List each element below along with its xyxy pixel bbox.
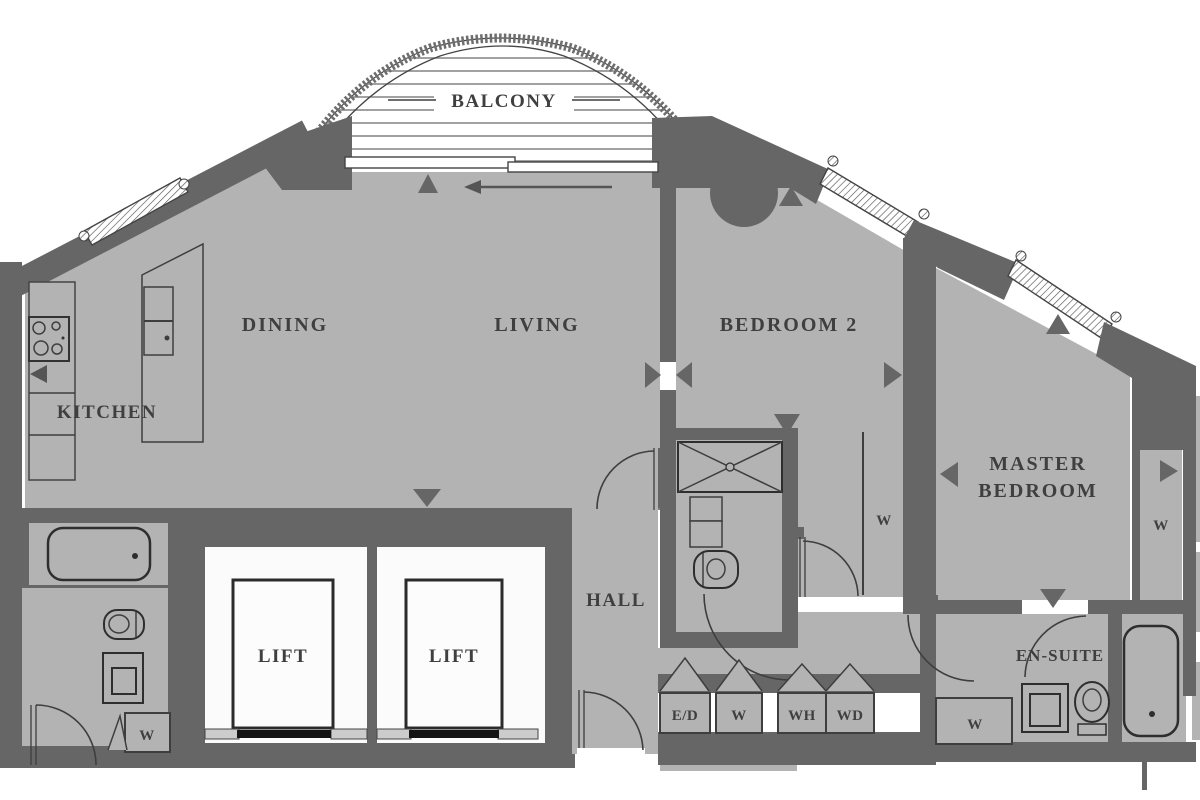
closet-label-w-bedroom2: W bbox=[876, 513, 892, 529]
closet-row-bottom-wall bbox=[658, 732, 936, 765]
room-label-lift1: LIFT bbox=[258, 646, 308, 667]
living-bedroom2-wall-upper bbox=[660, 172, 676, 362]
right-exterior-wall bbox=[1183, 366, 1196, 696]
lift2-door-sill bbox=[409, 730, 499, 738]
toilet2-icon bbox=[694, 551, 738, 588]
room-label-lift2: LIFT bbox=[429, 646, 479, 667]
closet-label-w-master: W bbox=[1153, 518, 1169, 534]
living-bedroom2-wall-lower bbox=[660, 390, 676, 648]
ensuite-left-wall bbox=[920, 612, 936, 745]
closet-label-wh: WH bbox=[788, 708, 816, 724]
room-label-master-line2: BEDROOM bbox=[978, 480, 1098, 502]
room-label-balcony: BALCONY bbox=[451, 91, 557, 112]
ensuite-closet: W bbox=[936, 698, 1012, 744]
curved-wall-feature-small bbox=[698, 152, 728, 182]
closet-label-w-ensuite: W bbox=[967, 717, 983, 733]
closet-label-ed: E/D bbox=[672, 708, 699, 724]
ensuite-tub-separator-wall bbox=[1108, 614, 1122, 744]
balcony: BALCONY bbox=[290, 38, 714, 163]
room-label-kitchen: KITCHEN bbox=[57, 402, 157, 423]
hob-icon bbox=[29, 317, 69, 361]
toilet-icon bbox=[104, 610, 144, 639]
bedroom2-door-wall-stub bbox=[782, 527, 804, 539]
ensuite-bathtub-icon bbox=[1124, 626, 1178, 736]
left-exterior-wall bbox=[0, 262, 22, 768]
floor-plan-drawing: BALCONY bbox=[0, 0, 1200, 800]
adjacent-unit-sliver-1 bbox=[1196, 396, 1200, 542]
kitchen-counter bbox=[29, 282, 75, 480]
ensuite-top-wall-left bbox=[936, 600, 1022, 614]
closet-label-wd: WD bbox=[837, 708, 864, 724]
shower-icon bbox=[678, 442, 782, 492]
lift1-door-sill bbox=[237, 730, 331, 738]
hall-door-opening bbox=[595, 490, 658, 510]
floor-plan-page: BALCONY bbox=[0, 0, 1200, 800]
bathroom2-top-wall bbox=[676, 428, 798, 440]
closet-label-w-hall: W bbox=[731, 708, 747, 724]
room-label-bedroom2: BEDROOM 2 bbox=[720, 314, 859, 336]
bathroom2-bottom-wall bbox=[660, 632, 798, 648]
room-label-living: LIVING bbox=[494, 314, 579, 336]
master-window-marker-triangle bbox=[1046, 314, 1070, 334]
ensuite-top-wall-right bbox=[1088, 600, 1186, 614]
sink-icon bbox=[103, 653, 143, 703]
hall-floor bbox=[572, 508, 658, 754]
room-label-master-line1: MASTER bbox=[989, 453, 1087, 475]
room-label-hall: HALL bbox=[586, 590, 646, 611]
bottom-wall-stub bbox=[1142, 762, 1147, 790]
ensuite-toilet-icon bbox=[1075, 682, 1109, 735]
ensuite-sink-icon bbox=[1022, 684, 1068, 732]
bathroom2-cabinet bbox=[690, 497, 722, 547]
room-label-ensuite: EN-SUITE bbox=[1016, 646, 1104, 665]
adjacent-unit-sliver-2 bbox=[1196, 552, 1200, 632]
corridor-corner-wall bbox=[903, 595, 938, 614]
bedroom2-master-dividing-wall bbox=[903, 238, 936, 612]
room-label-dining: DINING bbox=[242, 314, 328, 336]
closet-label-w-bathroom: W bbox=[139, 728, 155, 744]
bathtub-icon bbox=[48, 528, 150, 580]
